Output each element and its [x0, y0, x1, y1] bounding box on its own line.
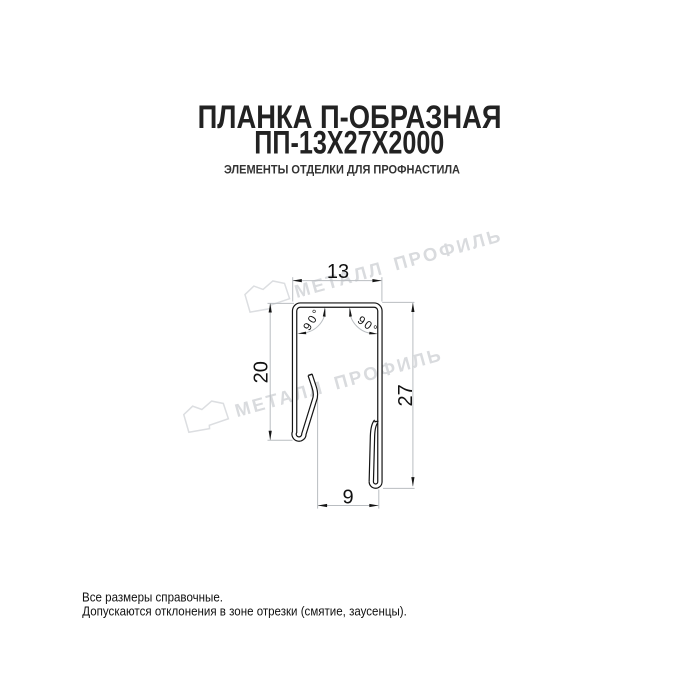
svg-text:9: 9 [342, 486, 353, 508]
svg-text:Допускаются отклонения в зоне: Допускаются отклонения в зоне отрезки (с… [82, 603, 407, 618]
svg-text:ЭЛЕМЕНТЫ ОТДЕЛКИ ДЛЯ ПРОФНАСТИ: ЭЛЕМЕНТЫ ОТДЕЛКИ ДЛЯ ПРОФНАСТИЛА [224, 162, 460, 176]
svg-text:13: 13 [327, 261, 349, 283]
svg-text:27: 27 [395, 384, 417, 406]
svg-text:20: 20 [250, 361, 272, 383]
svg-text:ПП-13Х27Х2000: ПП-13Х27Х2000 [254, 124, 444, 160]
